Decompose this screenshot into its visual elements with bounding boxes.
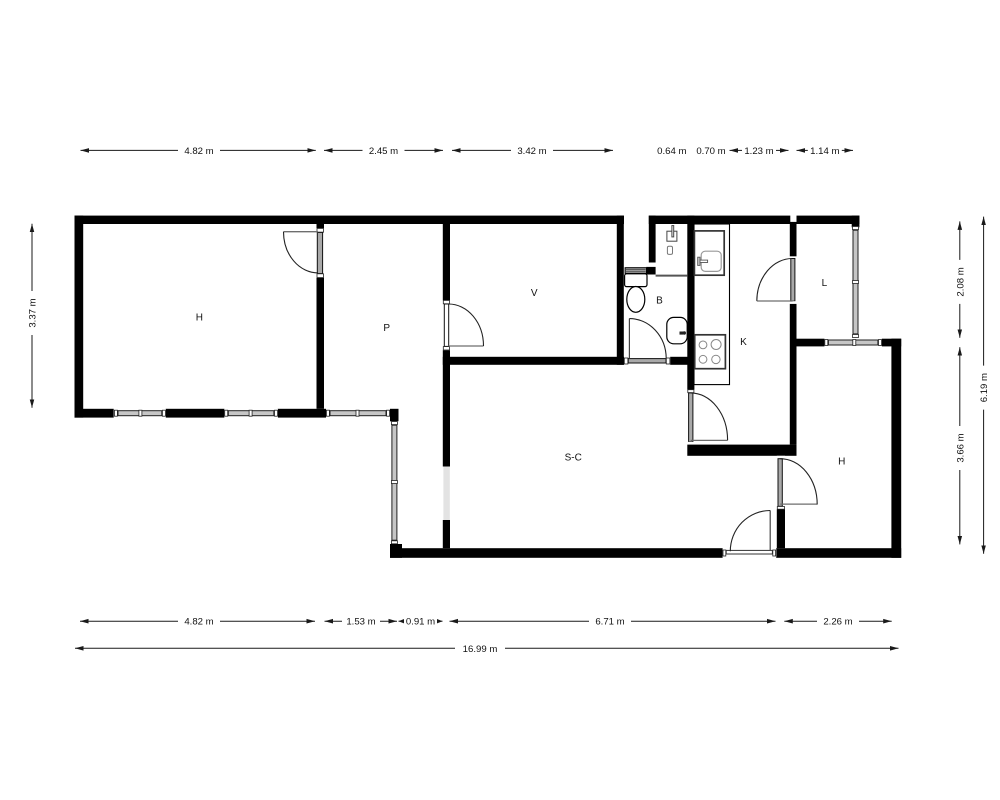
svg-text:V: V [531,288,538,299]
svg-text:1.53 m: 1.53 m [346,617,375,628]
svg-text:1.14 m: 1.14 m [810,146,839,157]
svg-text:P: P [383,323,390,334]
svg-text:0.91 m: 0.91 m [406,617,435,628]
svg-text:6.19 m: 6.19 m [979,373,990,402]
svg-text:K: K [740,337,747,348]
svg-text:3.37 m: 3.37 m [28,298,39,327]
svg-text:B: B [656,296,663,307]
svg-text:0.70 m: 0.70 m [696,146,725,157]
svg-text:4.82 m: 4.82 m [184,146,213,157]
svg-text:S-C: S-C [565,452,582,463]
svg-text:L: L [822,278,828,289]
svg-text:4.82 m: 4.82 m [184,617,213,628]
svg-text:16.99 m: 16.99 m [463,644,498,655]
svg-text:2.08 m: 2.08 m [955,267,966,296]
svg-text:2.45 m: 2.45 m [369,146,398,157]
svg-text:3.42 m: 3.42 m [517,146,546,157]
svg-text:6.71 m: 6.71 m [595,617,624,628]
svg-text:1.23 m: 1.23 m [744,146,773,157]
svg-text:H: H [838,456,845,467]
svg-text:H: H [196,312,203,323]
svg-text:0.64 m: 0.64 m [657,146,686,157]
svg-text:3.66 m: 3.66 m [955,433,966,462]
svg-text:2.26 m: 2.26 m [823,617,852,628]
